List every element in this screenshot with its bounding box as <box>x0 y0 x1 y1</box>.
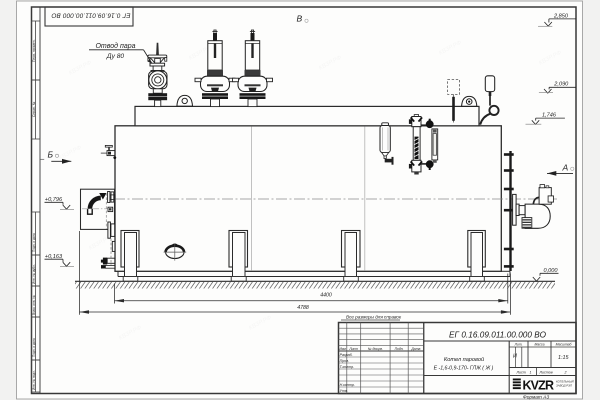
svg-text:+0,796: +0,796 <box>45 197 63 203</box>
svg-text:Инв. № подл.: Инв. № подл. <box>32 370 36 390</box>
svg-text:Т.контр.: Т.контр. <box>340 365 355 369</box>
svg-text:1: 1 <box>530 370 532 374</box>
svg-text:Подп. и дата: Подп. и дата <box>32 233 36 252</box>
svg-text:В: В <box>297 13 303 23</box>
svg-text:4400: 4400 <box>320 292 332 298</box>
svg-text:2,090: 2,090 <box>553 82 569 88</box>
svg-text:Лит.: Лит. <box>514 343 523 347</box>
svg-text:KVZR: KVZR <box>523 379 555 393</box>
svg-text:ЗАВОД РЭП: ЗАВОД РЭП <box>556 384 573 388</box>
svg-text:Лист: Лист <box>516 370 526 374</box>
svg-text:Листов: Листов <box>539 370 553 374</box>
svg-text:+0,163: +0,163 <box>45 254 63 260</box>
svg-text:Формат А3: Формат А3 <box>523 395 550 400</box>
svg-text:Дата: Дата <box>410 347 420 351</box>
svg-text:И: И <box>513 353 517 359</box>
svg-text:Перв. примен.: Перв. примен. <box>32 39 36 62</box>
svg-text:4788: 4788 <box>297 305 309 311</box>
svg-text:Взам. инв. №: Взам. инв. № <box>32 295 36 315</box>
svg-text:ЕГ 0.16.09.011.00.000 ВО: ЕГ 0.16.09.011.00.000 ВО <box>449 331 547 340</box>
svg-text:2,850: 2,850 <box>553 14 569 20</box>
svg-text:Утв.: Утв. <box>340 389 348 393</box>
svg-text:Котел паровой: Котел паровой <box>444 356 484 363</box>
svg-text:№ докум.: № докум. <box>368 347 383 351</box>
svg-text:Инв. № дубл.: Инв. № дубл. <box>32 264 36 284</box>
svg-text:Е -1,6-0,9-170- ГЛЖ ( Ж ): Е -1,6-0,9-170- ГЛЖ ( Ж ) <box>434 366 494 372</box>
svg-text:А: А <box>562 162 569 172</box>
svg-text:Пров.: Пров. <box>340 359 349 363</box>
svg-text:Н.контр.: Н.контр. <box>340 383 355 387</box>
svg-text:Масса: Масса <box>534 343 544 347</box>
svg-text:1:15: 1:15 <box>558 355 569 361</box>
svg-text:Масштаб: Масштаб <box>556 343 572 347</box>
svg-text:ЕГ 0.16.09.011.00.000 ВО: ЕГ 0.16.09.011.00.000 ВО <box>51 12 130 19</box>
svg-text:Изм: Изм <box>339 347 346 351</box>
svg-text:Подп. и дата: Подп. и дата <box>32 338 36 357</box>
svg-text:Все размеры для справок: Все размеры для справок <box>346 315 402 320</box>
svg-text:Отвод пара: Отвод пара <box>95 42 135 50</box>
svg-text:2: 2 <box>564 370 567 374</box>
svg-text:Разраб.: Разраб. <box>340 353 353 357</box>
svg-text:1,746: 1,746 <box>542 113 557 119</box>
svg-text:Справ. №: Справ. № <box>32 101 36 117</box>
svg-text:Ду 80: Ду 80 <box>106 53 125 60</box>
svg-text:Подп.: Подп. <box>395 347 404 351</box>
svg-text:0,000: 0,000 <box>544 268 559 274</box>
svg-text:Лист: Лист <box>348 347 358 351</box>
svg-text:Б: Б <box>48 150 54 160</box>
